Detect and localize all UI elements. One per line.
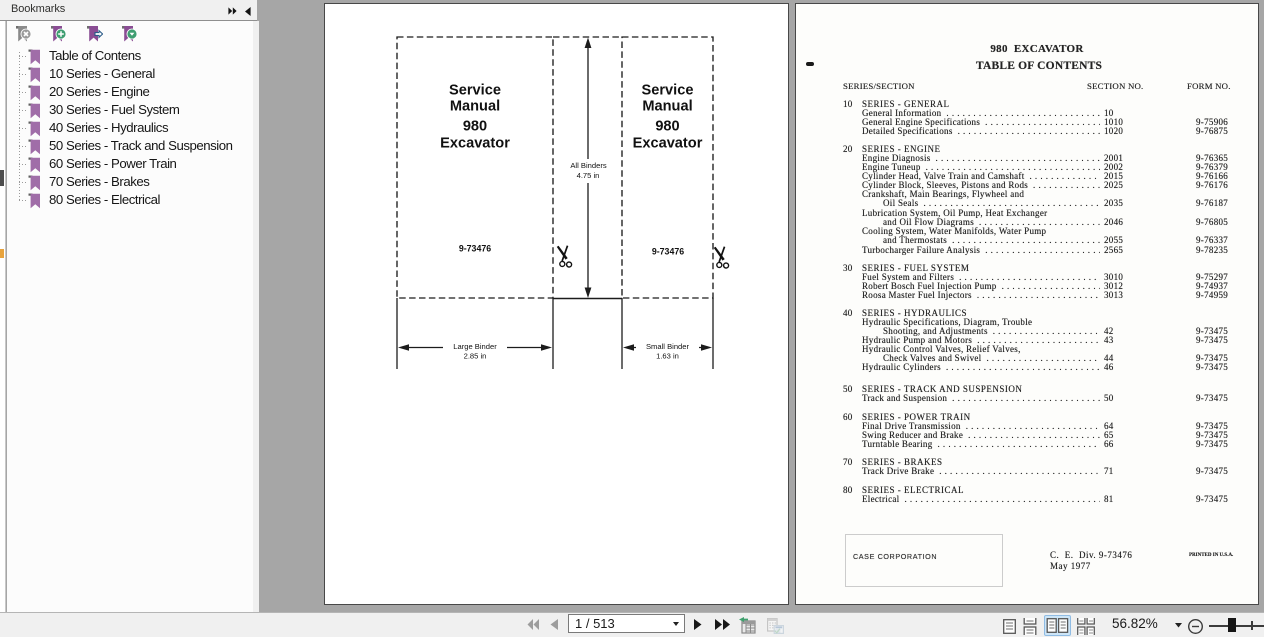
svg-text:4.75 in: 4.75 in	[577, 171, 600, 180]
svg-text:980: 980	[655, 119, 679, 135]
svg-text:9-73476: 9-73476	[459, 244, 491, 254]
svg-text:Large Binder: Large Binder	[453, 342, 497, 351]
svg-text:Service: Service	[449, 83, 501, 99]
svg-text:Small Binder: Small Binder	[646, 342, 690, 351]
svg-text:1.63 in: 1.63 in	[656, 352, 679, 361]
svg-text:Manual: Manual	[450, 99, 500, 115]
svg-text:Excavator: Excavator	[633, 136, 703, 152]
svg-text:9-73476: 9-73476	[652, 247, 684, 257]
svg-text:Manual: Manual	[642, 99, 692, 115]
svg-text:2.85 in: 2.85 in	[464, 352, 487, 361]
svg-text:980: 980	[463, 119, 487, 135]
svg-text:Service: Service	[642, 83, 694, 99]
svg-text:All Binders: All Binders	[570, 161, 606, 170]
svg-text:Excavator: Excavator	[440, 136, 510, 152]
